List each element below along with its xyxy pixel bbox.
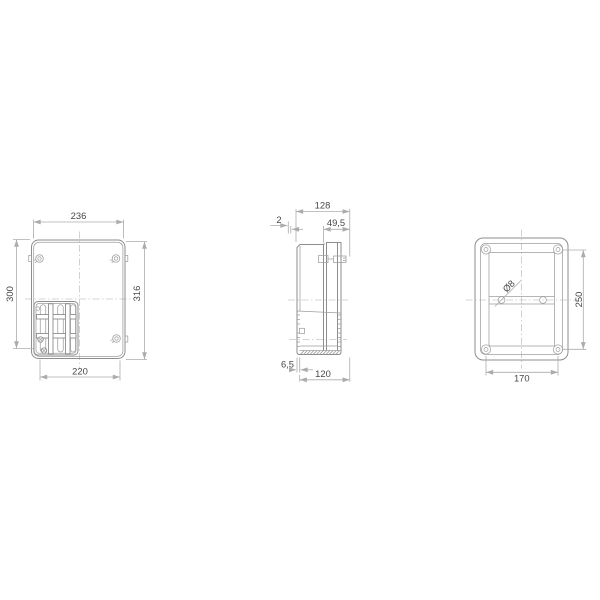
- dim-label-front-width-top: 236: [71, 210, 87, 221]
- dim-label-front-height-right: 316: [131, 286, 142, 302]
- corner-boss-icon: [553, 345, 562, 354]
- flange-screw-icon: [38, 337, 43, 342]
- dim-label-side-base-depth: 120: [315, 368, 331, 379]
- dim-label-side-lid-depth: 49,5: [327, 217, 345, 228]
- corner-boss-icon: [481, 345, 490, 354]
- dim-label-front-width-bottom: 220: [72, 365, 88, 376]
- flange-knockout-grid: [34, 302, 78, 356]
- dim-front-height-right: 316: [126, 242, 147, 360]
- front-view: 236 300 316 220: [4, 210, 147, 381]
- dim-label-front-height-left: 300: [4, 286, 15, 302]
- section-hatch: [301, 351, 340, 355]
- corner-boss-icon: [553, 245, 562, 254]
- side-flange-section: [297, 311, 341, 354]
- technical-drawing-canvas: 236 300 316 220: [0, 0, 600, 600]
- lid-screw-icon: [33, 255, 43, 263]
- flange-clip-detail: [300, 328, 305, 333]
- dim-side-lid-depth: 49,5: [324, 217, 350, 243]
- dim-label-back-width: 170: [514, 372, 530, 383]
- dim-front-width-top: 236: [34, 210, 124, 239]
- back-view: Ø8 250 170: [466, 230, 587, 384]
- dim-label-back-height: 250: [573, 292, 584, 308]
- dim-side-total-depth: 128: [296, 200, 350, 257]
- dim-label-side-lip: 2: [276, 214, 281, 225]
- dim-side-wall: 6,5: [281, 358, 313, 373]
- corner-boss-icon: [481, 245, 490, 254]
- dim-side-lip: 2: [271, 214, 304, 234]
- dim-label-side-total-depth: 128: [315, 200, 331, 211]
- dim-label-hole-diameter: Ø8: [500, 278, 517, 295]
- flange-hole: [36, 307, 40, 311]
- dim-front-width-bottom: 220: [40, 360, 120, 381]
- callout-hole-diameter: Ø8: [495, 278, 521, 307]
- lid-screw-icon: [110, 335, 120, 343]
- dim-label-side-wall: 6,5: [281, 359, 294, 370]
- side-body-profile: [297, 243, 341, 355]
- side-view: 128 2 49,5 6,5 120: [271, 200, 350, 382]
- lid-latch-clip: [319, 256, 347, 263]
- flange-screw-icon: [41, 348, 46, 353]
- lid-screw-icon: [110, 255, 120, 263]
